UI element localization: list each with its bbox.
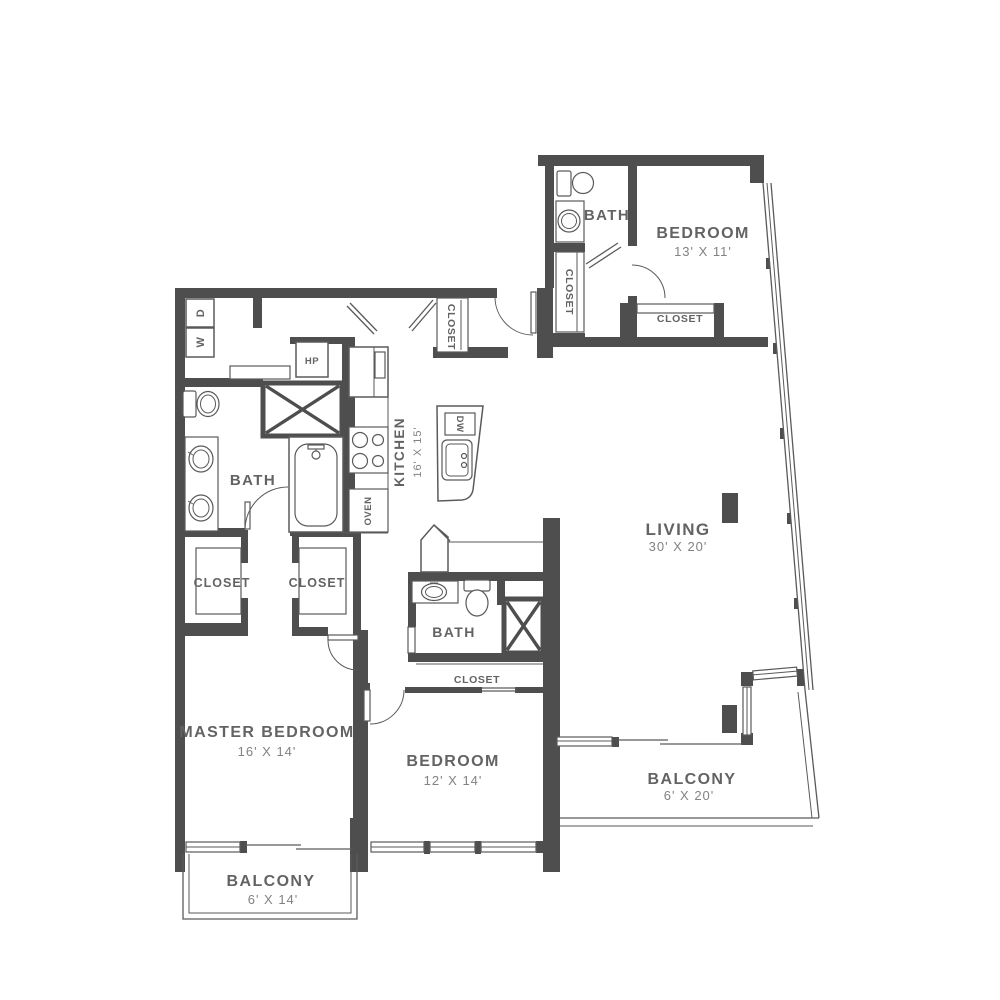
window: [743, 687, 751, 735]
island-sink-icon: [442, 440, 472, 480]
entry-door: [495, 292, 536, 335]
room-label-bedroom-upper: BEDROOM: [656, 225, 749, 242]
dim-label-balcony-right: 6' X 20': [664, 788, 715, 803]
window: [371, 842, 424, 852]
room-label-closet-upper-recess: CLOSET: [657, 313, 703, 325]
dryer-label: D: [195, 309, 207, 317]
bathtub-icon: [289, 437, 343, 532]
dim-label-kitchen: 16' X 15': [412, 426, 424, 477]
dishwasher-label: DW: [454, 416, 465, 433]
room-label-closet-entry: CLOSET: [445, 304, 457, 350]
heat-pump-label: HP: [305, 356, 319, 367]
room-label-balcony-left: BALCONY: [227, 873, 316, 890]
dim-label-living: 30' X 20': [649, 539, 708, 554]
double-vanity-icon: [185, 437, 218, 531]
oven-label: OVEN: [363, 497, 374, 526]
floor-plan-page: BEDROOM 13' X 11' BATH CLOSET CLOSET CLO…: [0, 0, 1000, 1000]
room-label-closet-master-left: CLOSET: [194, 576, 251, 590]
structural-columns: [722, 493, 738, 733]
room-label-bath-master: BATH: [230, 472, 276, 489]
window: [430, 842, 475, 852]
dim-label-bedroom-upper: 13' X 11': [674, 244, 732, 259]
column: [722, 493, 738, 523]
dim-label-master-bedroom: 16' X 14': [238, 744, 297, 759]
fridge-icon: [349, 347, 388, 397]
toilet-icon: [557, 171, 594, 196]
floor-plan: BEDROOM 13' X 11' BATH CLOSET CLOSET CLO…: [0, 0, 1000, 1000]
sink-icon: [556, 201, 584, 242]
toilet-icon: [183, 391, 219, 417]
column: [722, 705, 737, 733]
window: [557, 737, 612, 746]
room-label-bedroom-lower: BEDROOM: [406, 753, 499, 770]
sliding-door: [618, 740, 743, 744]
laundry-counter: [230, 366, 290, 379]
room-label-balcony-right: BALCONY: [648, 771, 737, 788]
lower-bath-door: [408, 627, 415, 653]
room-label-closet-upper-hall: CLOSET: [563, 269, 575, 315]
window-wall-east: [763, 183, 813, 690]
dim-label-balcony-left: 6' X 14': [248, 892, 299, 907]
vanity-icon: [412, 581, 458, 603]
entry-closet-door: [409, 300, 436, 331]
window: [186, 842, 240, 852]
laundry-door: [347, 303, 377, 334]
room-label-closet-master-right: CLOSET: [289, 576, 346, 590]
room-label-bath-upper: BATH: [584, 207, 630, 224]
shaft-x-icon: [504, 599, 543, 653]
balcony-rail-right: [560, 690, 819, 826]
dim-label-bedroom-lower: 12' X 14': [424, 773, 483, 788]
upper-bath-door: [586, 243, 621, 268]
room-label-bath-lower: BATH: [432, 624, 475, 640]
room-label-kitchen: KITCHEN: [392, 417, 407, 487]
shaft-x-icon: [263, 383, 342, 436]
room-label-closet-lower: CLOSET: [454, 674, 500, 686]
stove-icon: [349, 427, 388, 473]
sliding-door: [482, 688, 517, 691]
room-label-living: LIVING: [645, 520, 710, 539]
upper-bedroom-door: [632, 265, 665, 298]
window: [481, 842, 536, 852]
washer-label: W: [195, 336, 207, 347]
toilet-icon: [464, 580, 490, 616]
shower-icon: [421, 525, 450, 572]
lower-bedroom-door: [364, 690, 404, 724]
closet-shelf: [637, 304, 714, 313]
master-bath-door: [245, 487, 288, 530]
sliding-door: [245, 845, 352, 849]
room-label-master-bedroom: MASTER BEDROOM: [179, 724, 354, 741]
window: [753, 667, 798, 680]
